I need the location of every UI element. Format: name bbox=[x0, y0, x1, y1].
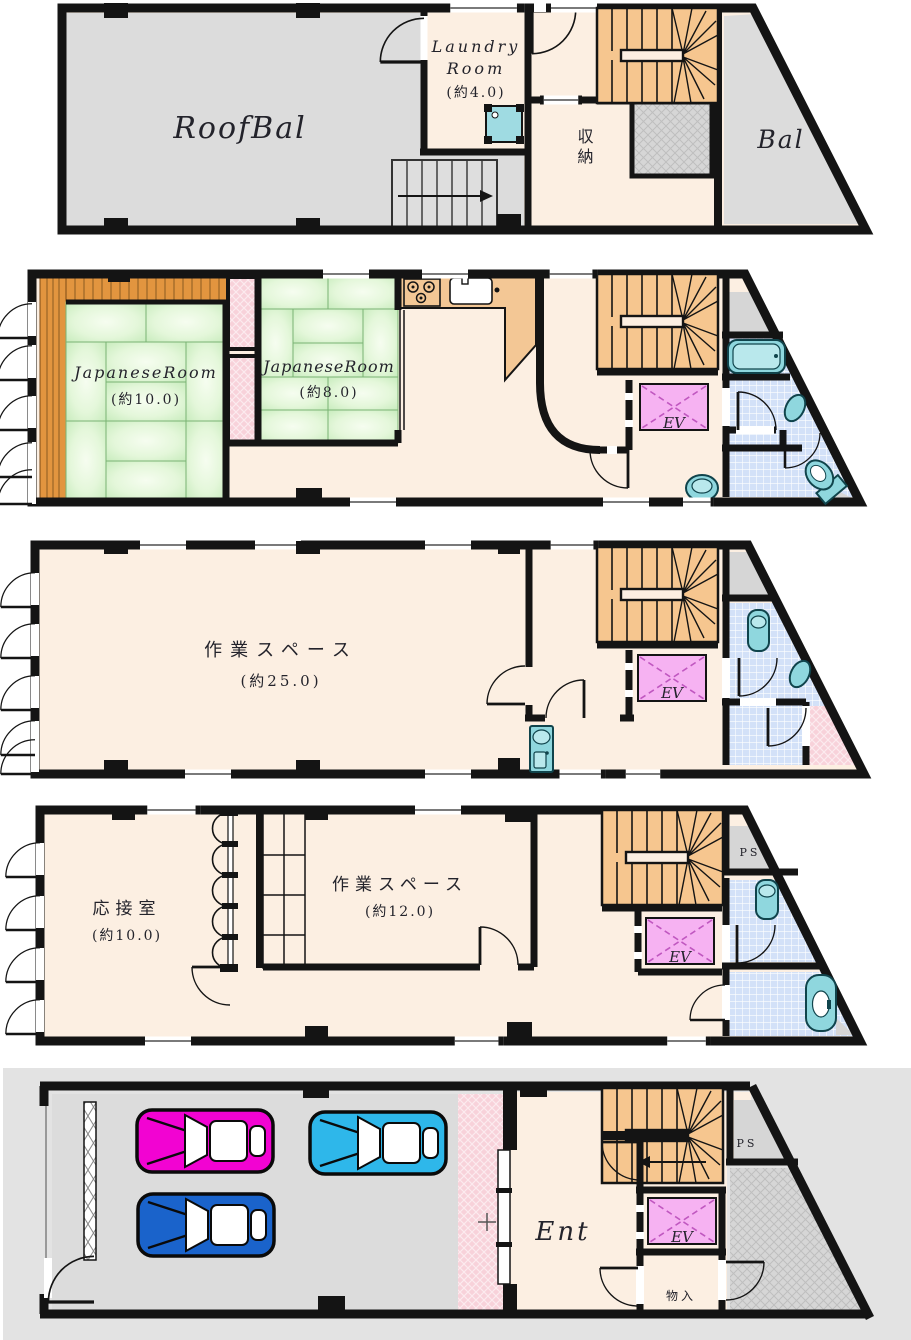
label-workspace-3f-size: (約25.0) bbox=[240, 672, 321, 690]
stairs-3f bbox=[597, 547, 718, 642]
window bbox=[663, 1037, 710, 1046]
label-ev-4f: EV bbox=[662, 414, 687, 432]
bathtub-4f bbox=[728, 340, 785, 373]
floorplan-canvas: RoofBal Bal Laundry Room (約4.0) 収納 bbox=[0, 0, 911, 1340]
label-reception: 応接室 bbox=[93, 899, 162, 919]
toilet-2f-lower bbox=[806, 975, 836, 1031]
label-laundry-1: Laundry bbox=[431, 37, 521, 56]
label-ent: Ent bbox=[534, 1217, 590, 1247]
label-jp8-size: (約8.0) bbox=[299, 385, 358, 401]
floor-3f: EV bbox=[1, 541, 864, 779]
window bbox=[410, 806, 466, 815]
label-monoire: 物入 bbox=[666, 1289, 696, 1303]
window bbox=[450, 1037, 503, 1046]
floor-1f: EV Ent 物入 PS bbox=[3, 1068, 911, 1340]
washing-machine-icon bbox=[484, 104, 524, 144]
closet-4f-lower bbox=[228, 356, 258, 444]
label-workspace-2f: 作業スペース bbox=[332, 875, 468, 895]
window bbox=[546, 541, 598, 550]
window bbox=[140, 1037, 196, 1046]
window bbox=[546, 4, 602, 13]
window bbox=[555, 770, 605, 779]
window bbox=[420, 770, 476, 779]
label-ev-1f: EV bbox=[670, 1228, 695, 1246]
label-workspace-3f: 作業スペース bbox=[204, 640, 358, 661]
window bbox=[598, 498, 654, 507]
stairs-2f bbox=[602, 810, 723, 905]
label-storage-roof: 収納 bbox=[575, 128, 594, 168]
window bbox=[142, 806, 201, 815]
floorplan-page: RoofBal Bal Laundry Room (約4.0) 収納 bbox=[0, 0, 911, 1340]
label-workspace-2f-size: (約12.0) bbox=[365, 904, 435, 920]
label-roofbal: RoofBal bbox=[172, 111, 306, 146]
floor-4f: EV bbox=[0, 270, 860, 507]
label-ev-3f: EV bbox=[660, 684, 685, 702]
window bbox=[545, 270, 597, 279]
label-jp10: JapaneseRoom bbox=[71, 363, 218, 382]
label-ps-2f: PS bbox=[740, 846, 761, 859]
car-magenta bbox=[137, 1110, 273, 1172]
gate-shutter bbox=[84, 1102, 96, 1260]
window bbox=[318, 270, 374, 279]
toilet-2f-upper bbox=[756, 880, 778, 919]
floor-roof: RoofBal Bal Laundry Room (約4.0) 収納 bbox=[62, 3, 866, 231]
label-ps-1f: PS bbox=[737, 1137, 758, 1150]
label-ev-2f: EV bbox=[668, 948, 693, 966]
window bbox=[680, 498, 714, 507]
car-cyan bbox=[310, 1112, 446, 1174]
roof-void-hatch bbox=[632, 100, 712, 176]
floor-2f: EV bbox=[6, 806, 860, 1046]
stairs-roof bbox=[597, 8, 718, 103]
window bbox=[180, 770, 236, 779]
label-reception-size: (約10.0) bbox=[92, 928, 162, 944]
slop-sink-3f bbox=[530, 726, 553, 772]
window bbox=[540, 96, 582, 105]
f4-left-doors bbox=[0, 302, 36, 504]
room-bal bbox=[724, 14, 860, 224]
window bbox=[420, 541, 476, 550]
car-blue bbox=[138, 1194, 274, 1256]
stairs-4f bbox=[597, 274, 718, 369]
window bbox=[622, 770, 664, 779]
label-bal: Bal bbox=[756, 125, 804, 154]
label-jp10-size: (約10.0) bbox=[111, 392, 181, 408]
window bbox=[417, 270, 473, 279]
label-jp8: JapaneseRoom bbox=[260, 357, 395, 376]
label-laundry-2: Room bbox=[446, 59, 505, 78]
window bbox=[443, 4, 524, 13]
closet-4f-upper bbox=[228, 277, 258, 349]
label-laundry-size: (約4.0) bbox=[446, 85, 505, 101]
window bbox=[345, 498, 401, 507]
toilet-3f bbox=[748, 610, 769, 651]
window bbox=[135, 541, 191, 550]
